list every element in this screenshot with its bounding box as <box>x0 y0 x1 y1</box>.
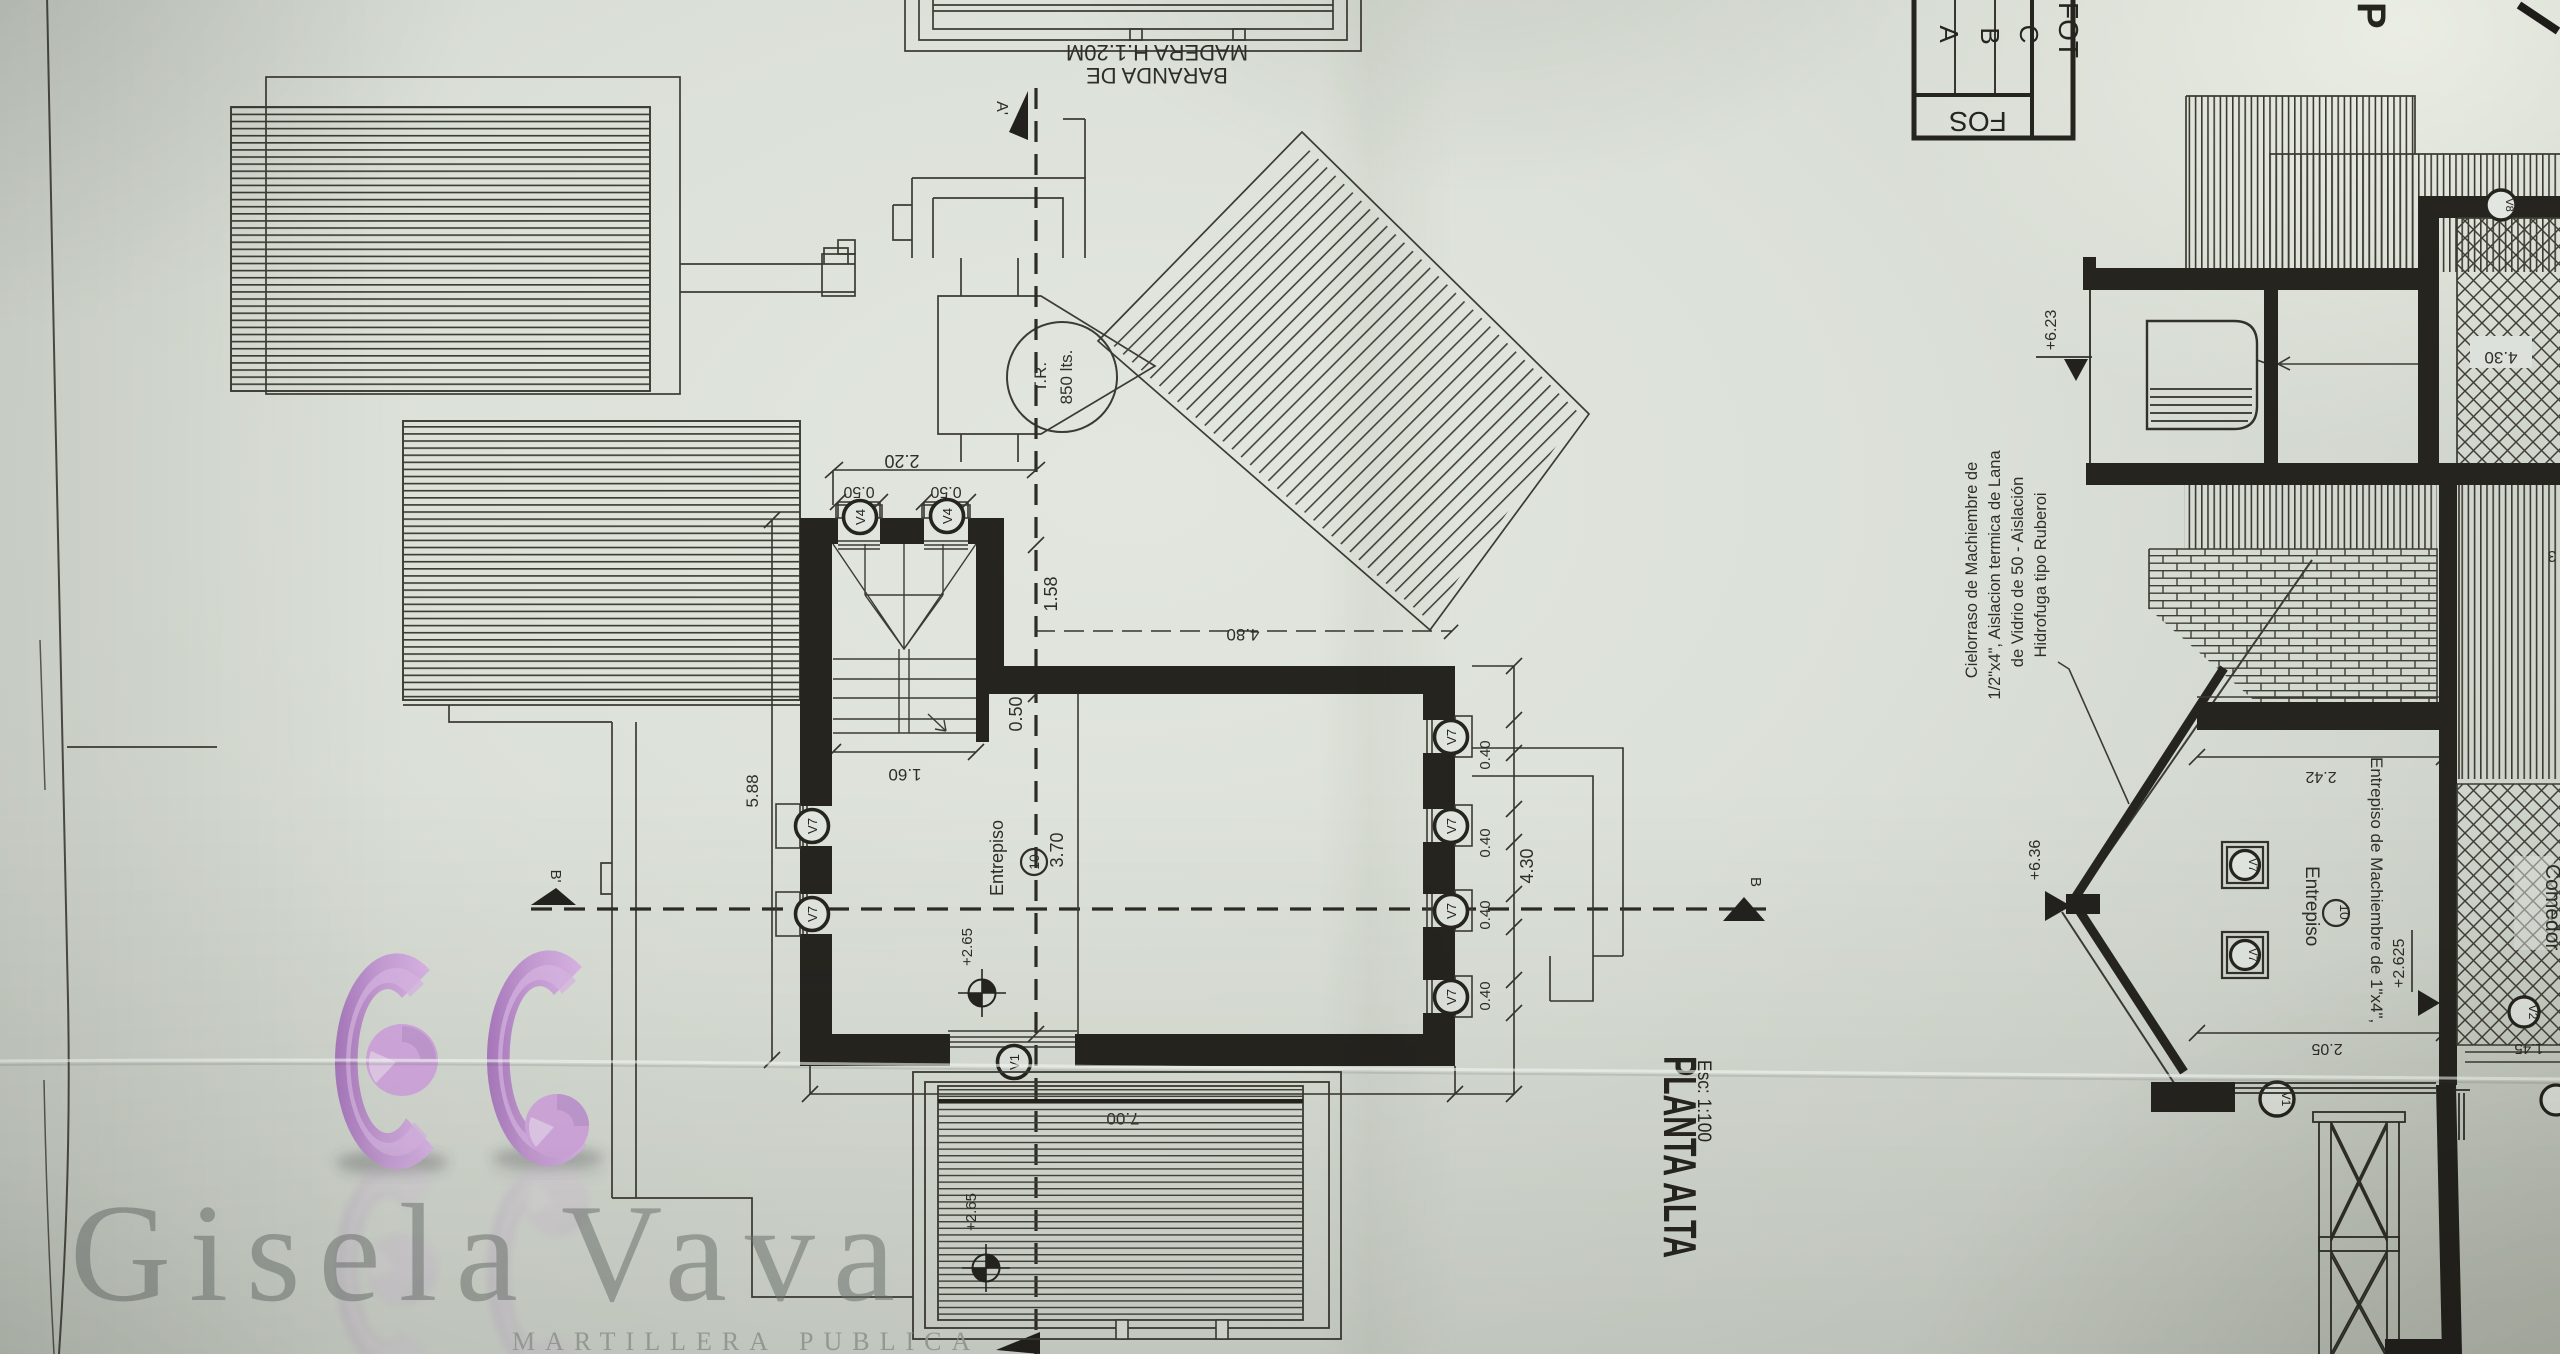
svg-text:V7: V7 <box>2246 858 2258 872</box>
svg-text:0.50: 0.50 <box>1006 696 1026 731</box>
svg-text:FOT: FOT <box>2053 2 2084 58</box>
svg-text:V8: V8 <box>2503 198 2515 211</box>
svg-text:3: 3 <box>2547 547 2556 564</box>
svg-text:Entrepiso: Entrepiso <box>2301 866 2322 946</box>
svg-text:A: A <box>1934 25 1964 43</box>
svg-text:0.40: 0.40 <box>1477 900 1494 929</box>
svg-text:de Vidrio de 50 - Aislación: de Vidrio de 50 - Aislación <box>2009 477 2027 667</box>
svg-text:1.60: 1.60 <box>888 765 921 784</box>
svg-text:FOS: FOS <box>1949 106 2007 137</box>
svg-text:2.20: 2.20 <box>884 451 919 471</box>
svg-text:10: 10 <box>1026 854 1042 870</box>
svg-text:Cielorraso de Machiembre de: Cielorraso de Machiembre de <box>1963 462 1981 678</box>
svg-text:Comedor: Comedor <box>2541 864 2560 950</box>
svg-text:Entrepiso: Entrepiso <box>987 820 1007 896</box>
svg-text:1.45: 1.45 <box>2514 1040 2543 1057</box>
svg-text:A': A' <box>993 101 1010 115</box>
svg-text:3.70: 3.70 <box>1047 832 1067 867</box>
svg-text:Hidrofuga tipo Ruberoi: Hidrofuga tipo Ruberoi <box>2032 492 2050 657</box>
svg-text:V7: V7 <box>805 818 820 834</box>
svg-text:V1: V1 <box>2279 1092 2293 1107</box>
svg-text:MADERA H.1.20M: MADERA H.1.20M <box>1066 40 1248 65</box>
svg-text:V7: V7 <box>1444 903 1459 919</box>
svg-text:10: 10 <box>2337 904 2353 920</box>
svg-text:4.80: 4.80 <box>1226 625 1259 644</box>
svg-text:0.40: 0.40 <box>1477 981 1494 1010</box>
svg-text:C: C <box>2014 25 2044 44</box>
svg-text:V4: V4 <box>940 508 955 524</box>
svg-text:P: P <box>2349 2 2393 29</box>
svg-text:1.58: 1.58 <box>1041 576 1061 611</box>
svg-text:V7: V7 <box>1444 989 1459 1005</box>
svg-text:4.30: 4.30 <box>1517 848 1537 883</box>
svg-text:850 lts.: 850 lts. <box>1057 350 1076 405</box>
svg-text:+6.36: +6.36 <box>2027 840 2044 881</box>
svg-text:+6.23: +6.23 <box>2043 310 2060 351</box>
svg-text:2.05: 2.05 <box>2311 1040 2342 1057</box>
svg-text:V7: V7 <box>2246 948 2258 962</box>
svg-text:B: B <box>1747 877 1764 887</box>
svg-text:1/2"x4", Aislacion termica de: 1/2"x4", Aislacion termica de Lana <box>1986 450 2004 700</box>
svg-text:4.30: 4.30 <box>2484 348 2517 367</box>
svg-text:0.40: 0.40 <box>1477 828 1494 857</box>
svg-text:V7: V7 <box>1444 818 1459 834</box>
svg-text:V1: V1 <box>1007 1054 1022 1070</box>
svg-text:B': B' <box>547 870 564 883</box>
svg-text:5.88: 5.88 <box>743 774 762 807</box>
svg-text:0.50: 0.50 <box>843 483 874 500</box>
svg-text:+2.65: +2.65 <box>959 928 976 966</box>
svg-text:Entrepiso de Machiembre de 1"x: Entrepiso de Machiembre de 1"x4", <box>2367 757 2386 1023</box>
svg-text:2.42: 2.42 <box>2305 768 2336 785</box>
svg-text:V2: V2 <box>2526 1005 2540 1020</box>
svg-text:B: B <box>1975 27 2005 44</box>
svg-text:+2.625: +2.625 <box>2391 939 2408 988</box>
svg-text:V7: V7 <box>805 906 820 922</box>
svg-text:V4: V4 <box>853 509 868 525</box>
svg-text:0.40: 0.40 <box>1477 740 1494 769</box>
svg-text:T.R.: T.R. <box>1031 362 1050 392</box>
svg-text:V7: V7 <box>1444 729 1459 745</box>
svg-text:BARANDA DE: BARANDA DE <box>1086 63 1228 88</box>
svg-text:0.50: 0.50 <box>930 483 961 500</box>
